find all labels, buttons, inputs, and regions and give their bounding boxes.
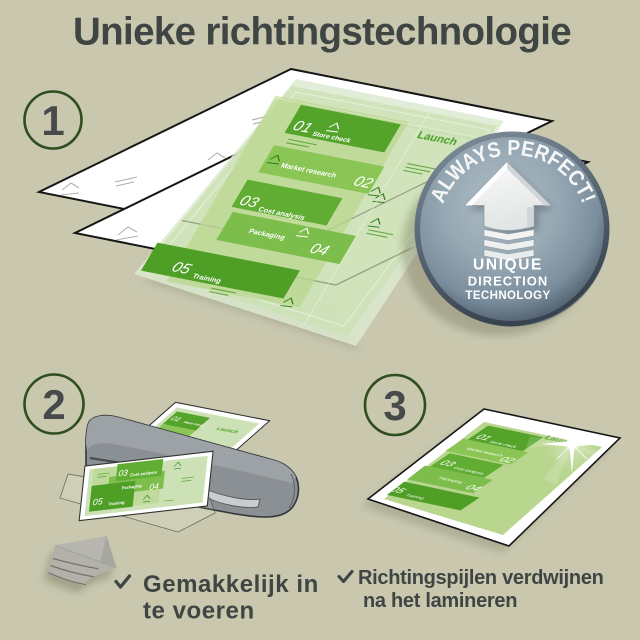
- svg-text:1: 1: [41, 97, 64, 144]
- svg-text:Richtingspijlen verdwijnen: Richtingspijlen verdwijnen: [358, 567, 604, 589]
- svg-text:Unieke richtingstechnologie: Unieke richtingstechnologie: [73, 11, 571, 54]
- svg-text:03: 03: [118, 467, 129, 478]
- svg-text:2: 2: [42, 381, 65, 428]
- svg-text:04: 04: [149, 481, 160, 492]
- svg-text:3: 3: [383, 382, 406, 429]
- svg-text:te voeren: te voeren: [143, 598, 255, 625]
- svg-text:TECHNOLOGY: TECHNOLOGY: [465, 290, 550, 302]
- svg-text:na het lamineren: na het lamineren: [363, 590, 517, 612]
- svg-text:Gemakkelijk in: Gemakkelijk in: [143, 571, 319, 598]
- svg-text:UNIQUE: UNIQUE: [473, 257, 543, 274]
- svg-text:DIRECTION: DIRECTION: [468, 274, 549, 289]
